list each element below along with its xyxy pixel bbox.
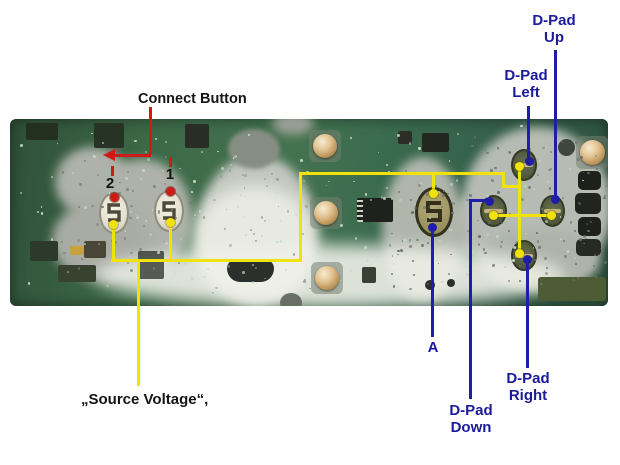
solder-dot: [213, 199, 215, 201]
solder-dot: [409, 245, 412, 248]
yellow-solder-dot-button2: [109, 220, 118, 229]
blue-contact-dot-a: [428, 223, 437, 232]
solder-dot: [221, 167, 224, 170]
solder-dot: [469, 194, 471, 196]
yellow-wire-bus-bottom: [111, 259, 302, 262]
solder-dot: [534, 259, 536, 261]
solder-dot: [583, 243, 585, 245]
solder-dot: [418, 224, 420, 226]
solder-dot: [403, 239, 406, 242]
solder-dot: [20, 144, 23, 147]
solder-dot: [41, 212, 44, 215]
button1-label: 1: [158, 166, 182, 183]
solder-dot: [194, 214, 196, 216]
solder-dot: [268, 219, 270, 221]
solder-dot: [153, 185, 156, 188]
solder-dot: [157, 251, 160, 254]
solder-dot: [217, 190, 219, 192]
component-blob: [26, 123, 58, 140]
solder-dot: [391, 197, 394, 200]
solder-dot: [255, 267, 257, 269]
solder-dot: [449, 160, 451, 162]
solder-dot: [132, 190, 134, 192]
screw-hole: [447, 279, 455, 287]
solder-dot: [149, 233, 152, 236]
solder-dot: [497, 147, 499, 149]
yellow-solder-dot-button1: [166, 218, 175, 227]
ic-chip-topright: [422, 133, 449, 152]
solder-dot: [125, 177, 128, 180]
dpad-left-label-line2: Left: [512, 84, 540, 101]
solder-dot: [386, 164, 389, 167]
connect-arrow-vertical: [149, 107, 152, 155]
solder-dot: [155, 138, 157, 140]
minus-button-dome[interactable]: [313, 134, 337, 158]
solder-dot: [420, 182, 422, 184]
solder-dot: [240, 179, 242, 181]
blue-contact-dot-dpad-right: [551, 195, 560, 204]
solder-dot: [165, 141, 167, 143]
a-callout-line: [431, 227, 434, 337]
solder-dot: [519, 265, 521, 267]
solder-dot: [107, 271, 109, 273]
solder-dot: [115, 241, 118, 244]
solder-dot: [91, 205, 94, 208]
solder-dot: [208, 199, 210, 201]
solder-dot: [142, 169, 145, 172]
solder-dot: [567, 250, 570, 253]
solder-dot: [560, 238, 562, 240]
solder-dot: [77, 239, 80, 242]
solder-dot: [276, 241, 278, 243]
component-gold-small: [70, 246, 84, 255]
solder-dot: [187, 186, 189, 188]
solder-dot: [20, 192, 22, 194]
ic-chip-main: [357, 198, 393, 222]
solder-dot: [28, 282, 31, 285]
solder-dot: [391, 273, 393, 275]
blue-contact-dot-dpad-left: [485, 197, 494, 206]
solder-dot: [129, 217, 131, 219]
solder-dot: [436, 259, 438, 261]
solder-dot: [586, 223, 589, 226]
solder-dot: [102, 142, 104, 144]
solder-dot: [594, 254, 596, 256]
solder-dot: [305, 205, 308, 208]
yellow-wire-riser: [299, 172, 302, 260]
red-contact-dot-button2: [110, 193, 119, 202]
solder-dot: [127, 171, 129, 173]
solder-dot: [544, 257, 547, 260]
solder-dot: [130, 211, 132, 213]
s-contact-icon: [423, 198, 445, 226]
solder-dot: [215, 287, 217, 289]
solder-dot: [409, 142, 412, 145]
solder-dot: [423, 206, 426, 209]
solder-dot: [524, 185, 526, 187]
dpad-up-label-line2: Up: [544, 29, 564, 46]
solder-dot: [62, 171, 64, 173]
power-button-dome[interactable]: [580, 140, 605, 165]
solder-dot: [193, 180, 196, 183]
solder-dot: [217, 151, 219, 153]
yellow-solder-dot-dpad-top: [515, 162, 524, 171]
component-blob: [84, 241, 106, 258]
solder-dot: [350, 270, 352, 272]
yellow-wire-source-stem: [137, 260, 140, 386]
solder-dot: [79, 183, 82, 186]
solder-dot: [136, 217, 139, 220]
connector-blob: [578, 217, 601, 236]
solder-dot: [78, 267, 80, 269]
solder-dot: [471, 145, 473, 147]
component-blob: [138, 251, 164, 279]
solder-dot: [84, 243, 86, 245]
solder-dot: [233, 157, 235, 159]
figure-canvas: Connect Button 2 1 „Source Voltage“, D-P…: [0, 0, 620, 465]
yellow-wire-dpad-horizontal: [492, 214, 552, 217]
yellow-solder-dot-dpad-left: [489, 211, 498, 220]
solder-dot: [304, 279, 306, 281]
solder-dot: [261, 216, 263, 218]
solder-dot: [328, 181, 330, 183]
top-edge-bump: [272, 119, 314, 135]
solder-dot: [488, 221, 491, 224]
solder-dot: [106, 285, 108, 287]
solder-dot: [51, 176, 53, 178]
yellow-solder-dot-a: [429, 189, 438, 198]
solder-dot: [72, 172, 74, 174]
solder-dot: [287, 210, 289, 212]
solder-dot: [418, 147, 421, 150]
solder-dot: [303, 180, 305, 182]
solder-dot: [165, 242, 168, 245]
solder-dot: [93, 155, 96, 158]
solder-dot: [427, 283, 429, 285]
blue-contact-dot-dpad-bottom: [523, 255, 532, 264]
solder-dot: [271, 173, 273, 175]
solder-dot: [484, 252, 486, 254]
solder-dot: [37, 211, 40, 214]
solder-dot: [397, 134, 400, 137]
home-button-dome[interactable]: [314, 201, 338, 225]
solder-dot: [242, 174, 244, 176]
solder-dot: [562, 197, 564, 199]
solder-dot: [240, 194, 242, 196]
solder-dot: [365, 193, 368, 196]
solder-dot: [51, 238, 54, 241]
component-small: [362, 267, 376, 283]
solder-dot: [158, 210, 160, 212]
dpad-left-callout-line: [527, 106, 530, 162]
solder-dot: [542, 147, 545, 150]
solder-dot: [355, 237, 357, 239]
solder-dot: [242, 271, 244, 273]
solder-dot: [302, 233, 304, 235]
solder-dot: [381, 196, 383, 198]
solder-dot: [143, 225, 145, 227]
solder-dot: [134, 140, 137, 143]
dpad-down-label-line2: Down: [451, 419, 492, 436]
dpad-left-label-line1: D-Pad: [504, 67, 547, 84]
solder-dot: [497, 191, 500, 194]
solder-dot: [276, 192, 278, 194]
solder-dot: [443, 190, 445, 192]
solder-dot: [350, 137, 352, 139]
connect-arrow-head: [103, 149, 115, 161]
dpad-right-label-line2: Right: [509, 387, 547, 404]
dpad-down-label-line1: D-Pad: [449, 402, 492, 419]
solder-dot: [572, 279, 574, 281]
connector-blob: [576, 239, 601, 256]
solder-dot: [57, 143, 59, 145]
solder-dot: [226, 209, 228, 211]
solder-dot: [483, 248, 485, 250]
solder-dot: [237, 206, 239, 208]
solder-dot: [264, 178, 266, 180]
yellow-wire-bus-top: [299, 172, 505, 175]
dpad-down-label: D-Pad Down: [431, 402, 511, 436]
solder-dot: [124, 237, 126, 239]
solder-dot: [604, 261, 607, 264]
solder-dot: [537, 240, 539, 242]
solder-dot: [165, 156, 167, 158]
solder-dot: [533, 188, 535, 190]
solder-dot: [598, 272, 600, 274]
solder-dot: [41, 206, 43, 208]
solder-dot: [198, 278, 200, 280]
solder-dot: [353, 181, 355, 183]
solder-dot: [378, 152, 380, 154]
solder-dot: [478, 235, 481, 238]
solder-dot: [280, 219, 282, 221]
solder-dot: [427, 242, 429, 244]
solder-dot: [191, 191, 193, 193]
solder-dot: [474, 136, 476, 138]
shadow-dome: [228, 129, 280, 169]
solder-dot: [486, 152, 488, 154]
solder-dot: [540, 283, 543, 286]
edge-notch: [280, 293, 302, 306]
solder-dot: [199, 210, 201, 212]
solder-dot: [457, 133, 459, 135]
bean-component: [227, 259, 274, 282]
solder-dot: [545, 220, 548, 223]
solder-dot: [438, 240, 440, 242]
solder-dot: [130, 205, 132, 207]
solder-dot: [421, 244, 424, 247]
solder-dot: [545, 272, 548, 275]
dpad-right-label: D-Pad Right: [488, 370, 568, 404]
solder-dot: [538, 246, 541, 249]
yellow-wire-dpad-vertical: [518, 165, 521, 255]
solder-dot: [465, 266, 467, 268]
solder-dot: [536, 232, 538, 234]
solder-dot: [229, 169, 232, 172]
connect-arrow-horizontal: [113, 154, 151, 157]
component-blob: [94, 123, 124, 148]
solder-dot: [563, 240, 565, 242]
solder-dot: [383, 197, 386, 200]
connect-button-label: Connect Button: [138, 91, 247, 107]
solder-dot: [587, 230, 590, 233]
dpad-down-callout-line: [469, 199, 472, 399]
solder-dot: [449, 228, 452, 231]
solder-dot: [309, 288, 311, 290]
solder-dot: [295, 214, 298, 217]
solder-dot: [386, 187, 388, 189]
plus-button-dome[interactable]: [315, 266, 339, 290]
solder-dot: [441, 281, 443, 283]
dpad-right-label-line1: D-Pad: [506, 370, 549, 387]
solder-dot: [574, 230, 576, 232]
yellow-solder-dot-dpad-bottom: [515, 249, 524, 258]
solder-dot: [98, 243, 100, 245]
ic-chip-top: [185, 124, 209, 148]
solder-dot: [397, 250, 400, 253]
dpad-right-callout-line: [526, 261, 529, 368]
solder-dot: [84, 160, 86, 162]
solder-dot: [528, 186, 531, 189]
blue-contact-dot-dpad-top: [525, 157, 534, 166]
solder-dot: [537, 174, 539, 176]
solder-dot: [234, 155, 237, 158]
solder-dot: [579, 238, 582, 241]
solder-dot: [403, 251, 405, 253]
solder-dot: [145, 220, 147, 222]
solder-dot: [306, 283, 308, 285]
solder-dot: [91, 133, 93, 135]
solder-dot: [491, 179, 494, 182]
yellow-wire-to-button2: [112, 223, 115, 260]
solder-dot: [539, 160, 541, 162]
solder-dot: [326, 185, 328, 187]
solder-dot: [193, 218, 195, 220]
solder-dot: [201, 151, 203, 153]
solder-dot: [255, 240, 257, 242]
solder-dot: [456, 179, 458, 181]
solder-dot: [340, 224, 343, 227]
solder-dot: [243, 216, 245, 218]
solder-dot: [126, 188, 129, 191]
solder-dot: [189, 201, 192, 204]
solder-dot: [508, 230, 510, 232]
solder-dot: [492, 264, 495, 267]
solder-dot: [276, 178, 279, 181]
solder-dot: [595, 276, 597, 278]
solder-dot: [306, 186, 308, 188]
solder-dot: [118, 192, 121, 195]
component-blob: [30, 241, 58, 261]
dpad-up-label-line1: D-Pad: [532, 12, 575, 29]
yellow-wire-to-button1: [169, 221, 172, 260]
red-contact-dot-button1: [166, 187, 175, 196]
solder-dot: [541, 208, 543, 210]
solder-dot: [174, 272, 176, 274]
solder-dot: [416, 239, 418, 241]
dpad-up-label: D-Pad Up: [514, 12, 594, 46]
a-label: A: [413, 339, 453, 356]
solder-dot: [264, 278, 266, 280]
button2-label: 2: [98, 175, 122, 192]
solder-dot: [317, 250, 320, 253]
source-voltage-label: „Source Voltage“,: [81, 391, 208, 408]
solder-dot: [520, 125, 522, 127]
yellow-solder-dot-dpad-right: [547, 211, 556, 220]
solder-dot: [525, 233, 527, 235]
dpad-left-label: D-Pad Left: [486, 67, 566, 101]
solder-dot: [253, 233, 255, 235]
solder-dot: [300, 159, 303, 162]
